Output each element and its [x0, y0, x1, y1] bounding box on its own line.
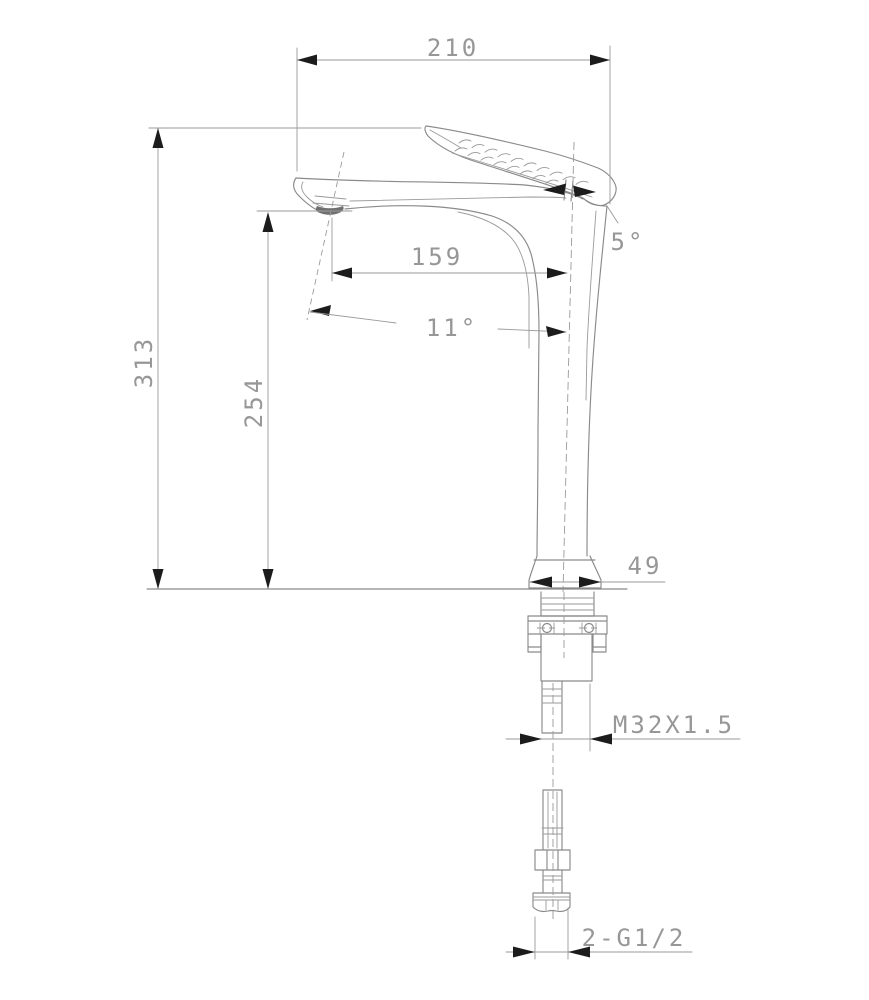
- leader-left: [310, 312, 396, 323]
- dimension-5deg-label: 5°: [611, 228, 646, 256]
- stream-axis-dashed-line: [307, 152, 344, 320]
- centerlines: [537, 142, 597, 920]
- body-right-inner-edge: [586, 211, 596, 400]
- dimension-overall-width: 210: [297, 34, 610, 204]
- hose-upper-tube: [543, 790, 562, 850]
- dimension-spout-reach: 159: [332, 218, 567, 281]
- body-right-edge: [587, 206, 607, 556]
- arrowhead-bottom: [263, 569, 274, 589]
- handle-texture-hatching: [455, 140, 588, 185]
- hose-hex-nut: [535, 850, 570, 870]
- arrowhead-left: [332, 268, 352, 279]
- extension-lines: [535, 908, 568, 959]
- drawing-canvas: 210 313 254 159 11° 5°: [0, 0, 869, 1000]
- faucet-technical-drawing: 210 313 254 159 11° 5°: [0, 0, 869, 1000]
- dimension-base-width: 49: [530, 552, 665, 588]
- arrowhead-right: [573, 186, 596, 198]
- dimension-mount-thread: M32X1.5: [506, 684, 740, 751]
- body-top-edge: [296, 178, 583, 199]
- hose-upper-inner-lines: [542, 792, 563, 848]
- leader-line: [607, 206, 618, 223]
- arrowhead-left: [520, 734, 542, 745]
- aerator-outlet: [316, 206, 344, 215]
- dimension-254-label: 254: [240, 376, 268, 428]
- dimension-hose-connection: 2-G1/2: [506, 908, 692, 959]
- faucet-outline: [294, 126, 617, 588]
- arrowhead-left: [513, 947, 535, 958]
- arrowhead-top: [263, 212, 274, 232]
- hose-end-nut: [533, 893, 570, 912]
- arrowhead-left: [530, 577, 552, 588]
- dimension-210-label: 210: [427, 34, 479, 62]
- spout-beak-outer: [294, 178, 317, 210]
- dimension-body-angle: 5°: [543, 184, 645, 257]
- mounting-assembly: [528, 592, 607, 733]
- side-tabs: [528, 634, 606, 652]
- dimension-313-label: 313: [130, 336, 158, 388]
- dimension-49-label: 49: [628, 552, 663, 580]
- aerator-lines: [313, 196, 349, 206]
- hose-lower-tube: [543, 870, 562, 893]
- tailpiece-thread-lines: [542, 598, 593, 610]
- flexible-hose: [533, 790, 570, 912]
- arrowhead-left: [543, 184, 566, 196]
- dimension-spout-height: 254: [240, 211, 352, 589]
- arrowhead-left: [297, 55, 317, 66]
- hose-end-nut-detail: [533, 897, 570, 910]
- dimension-11deg-label: 11°: [426, 314, 478, 342]
- dimension-159-label: 159: [411, 243, 463, 271]
- dimension-overall-height: 313: [130, 128, 421, 589]
- dimension-g12-label: 2-G1/2: [582, 924, 687, 952]
- mount-body: [541, 634, 592, 681]
- body-centerline: [563, 142, 574, 592]
- arrowhead-right: [590, 55, 610, 66]
- arrowhead-top: [153, 128, 164, 148]
- arrowhead-right: [547, 268, 567, 279]
- shank-thread-lines: [542, 689, 562, 703]
- dimension-m32-label: M32X1.5: [613, 711, 735, 739]
- handle-tip-detail: [430, 130, 461, 148]
- handle-inner-line: [452, 153, 592, 197]
- arrowhead-bottom: [153, 569, 164, 589]
- arrowhead-right: [546, 326, 566, 337]
- arrowhead-right: [579, 577, 601, 588]
- body-top-inner-edge: [350, 197, 566, 201]
- hose-lower-tube-lines: [543, 876, 562, 880]
- arrowhead-right: [590, 734, 612, 745]
